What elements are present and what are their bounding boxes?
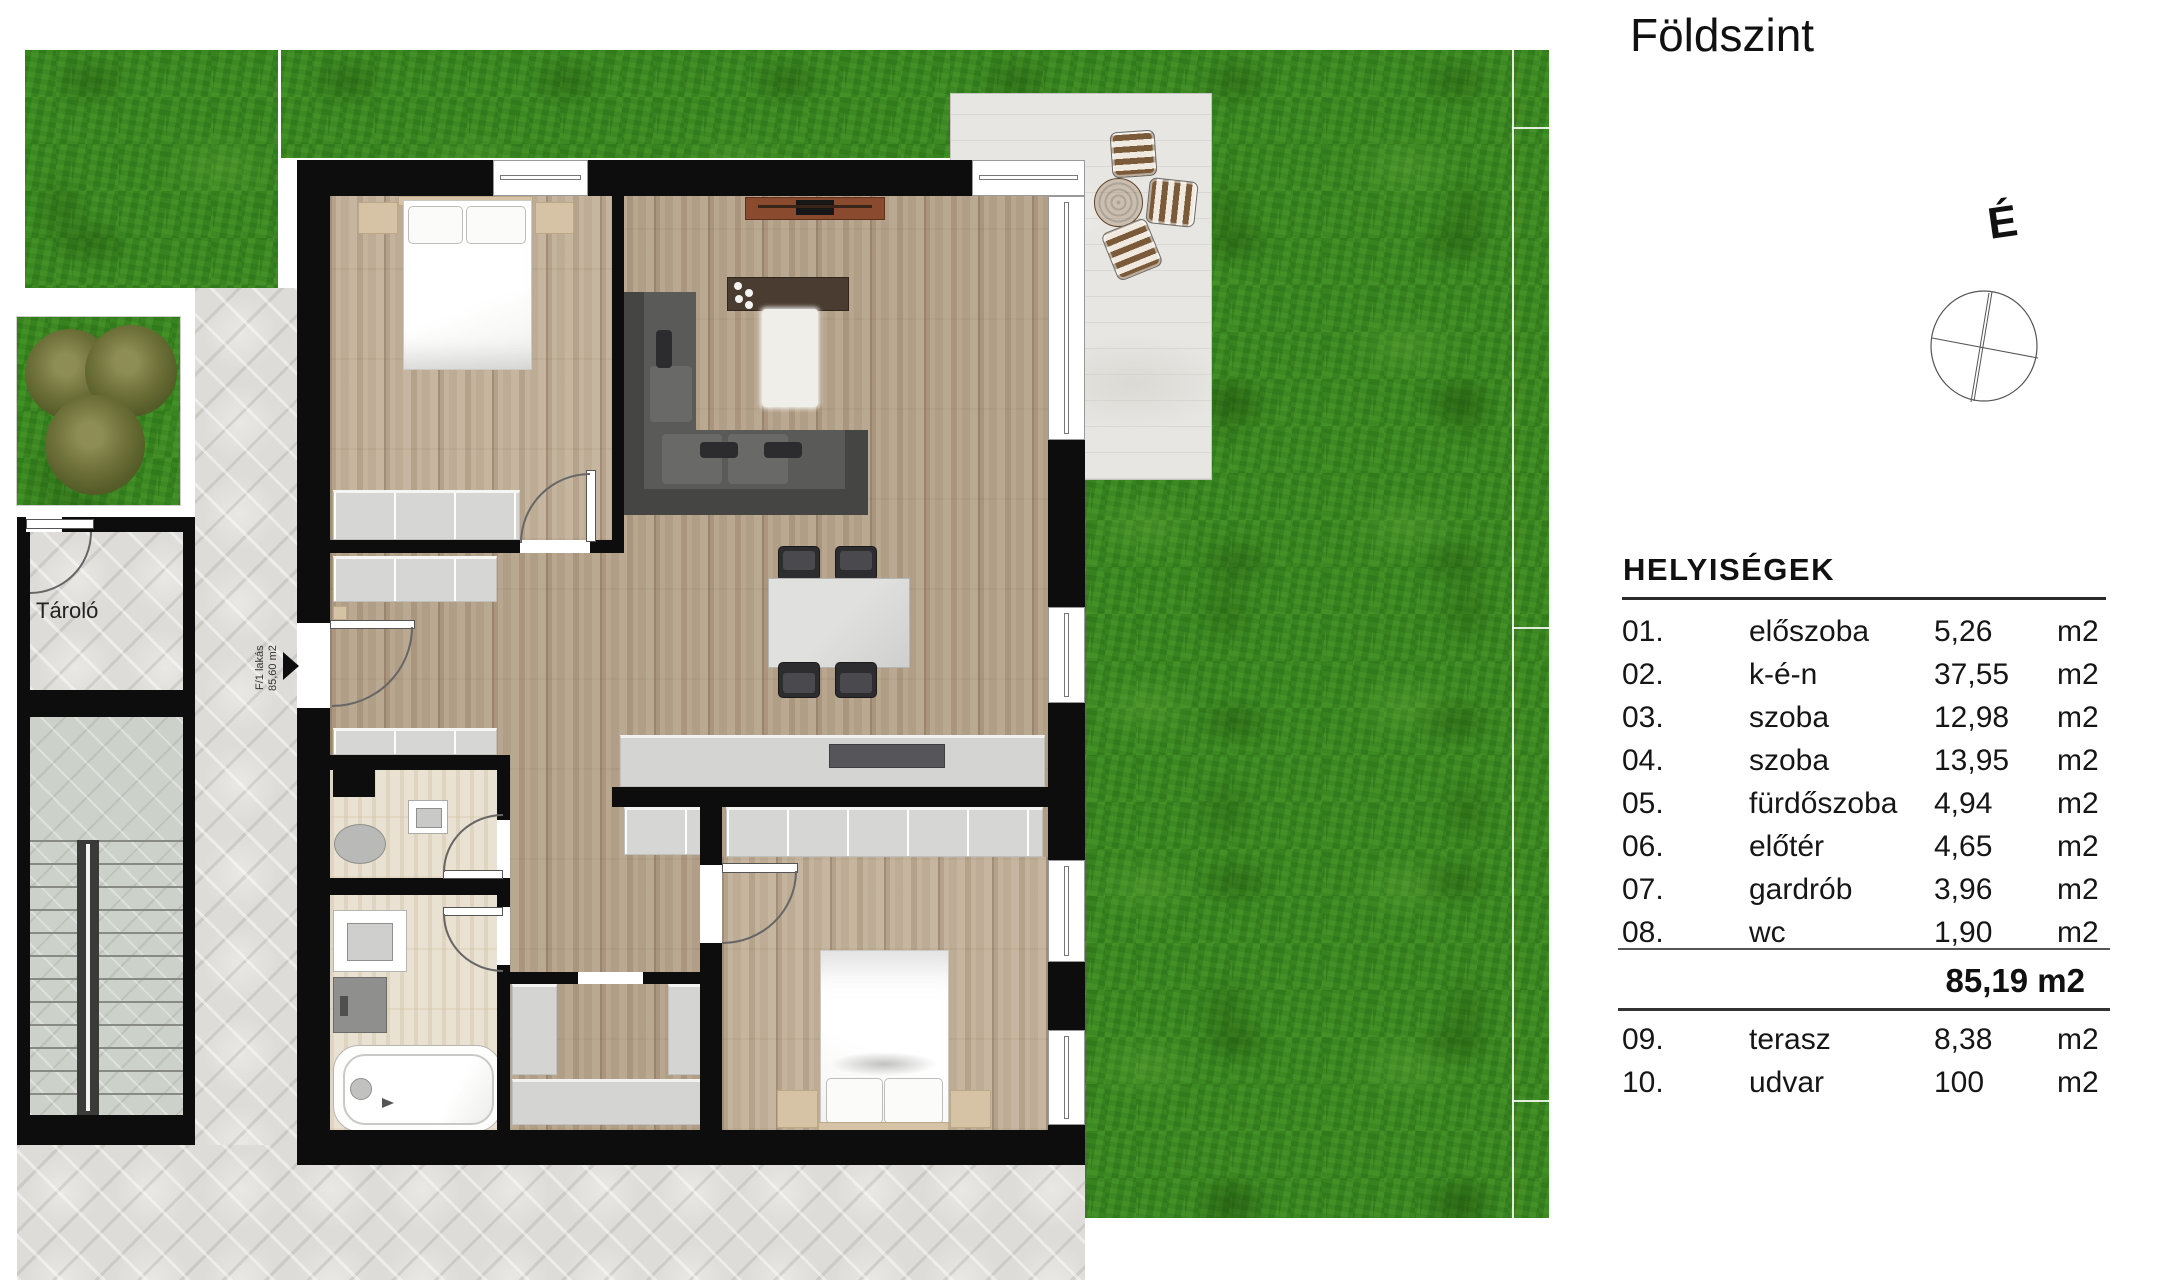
room-unit: m2 [2057, 701, 2132, 735]
window-bedroom03 [493, 160, 588, 196]
grass-area-top [281, 50, 950, 158]
floor-plan-page: Tároló [0, 0, 2178, 1280]
window-bedroom04-a [1048, 860, 1085, 962]
apartment-label: F/1 lakás 85,60 m2 [254, 636, 286, 700]
room-unit: m2 [2057, 658, 2132, 692]
dining-table [768, 578, 910, 668]
wc-sink [408, 800, 448, 834]
table-row: 09.terasz8,38m2 [1622, 1018, 2132, 1061]
living-sideboard [620, 735, 1045, 787]
nightstand [535, 202, 574, 234]
table-row: 03.szoba12,98m2 [1622, 696, 2132, 739]
dining-chair-icon [835, 662, 877, 698]
garden-square [17, 317, 180, 505]
window-bedroom04-b [1048, 1030, 1085, 1125]
room-area: 1,90 [1934, 916, 2057, 950]
room-unit: m2 [2057, 1066, 2132, 1100]
wall-bedroom03-bottom [330, 540, 520, 553]
boundary-tick-2 [1512, 627, 1549, 629]
sofa-pillow [764, 442, 802, 458]
info-panel: Földszint É HELYISÉGEK 01.előszoba5,26m2… [1549, 0, 2178, 1280]
bedroom04-wardrobe [726, 807, 1043, 857]
dining-chair-icon [778, 662, 820, 698]
room-area: 12,98 [1934, 701, 2057, 735]
table-row: 07.gardrób3,96m2 [1622, 868, 2132, 911]
boundary-line-vertical [1512, 50, 1514, 1218]
stairs [30, 840, 183, 1115]
nightstand [950, 1090, 991, 1128]
terrace-door-side [1048, 196, 1085, 440]
pillow [466, 206, 526, 244]
table-row: 06.előtér4,65m2 [1622, 825, 2132, 868]
gardrob-cabinet-left [512, 984, 557, 1075]
grass-area-top-left [25, 50, 278, 288]
sink-dot [735, 295, 743, 303]
room-name: szoba [1749, 701, 1934, 735]
room-num: 06. [1622, 830, 1749, 864]
tv-console [745, 197, 885, 220]
room-area: 4,65 [1934, 830, 2057, 864]
gardrob-door-opening [578, 972, 643, 984]
sink-dot [745, 289, 753, 297]
north-label: É [1985, 196, 2021, 250]
room-unit: m2 [2057, 1023, 2132, 1057]
apartment-area: 85,60 m2 [267, 645, 279, 691]
room-area: 3,96 [1934, 873, 2057, 907]
room-name: gardrób [1749, 873, 1934, 907]
bathtub-icon [333, 1045, 502, 1132]
pillow [884, 1078, 943, 1124]
wall-wc-bath [330, 878, 497, 895]
room-unit: m2 [2057, 744, 2132, 778]
outdoor-table: 09.terasz8,38m2 10.udvar100m2 [1622, 1018, 2132, 1104]
terrace-chair-icon [1145, 177, 1199, 228]
storage-label: Tároló [36, 598, 98, 624]
walkway-bottom [17, 1145, 1085, 1280]
terrace-chair-icon [1100, 217, 1164, 282]
pillow [826, 1078, 883, 1124]
room-num: 05. [1622, 787, 1749, 821]
rug [762, 309, 818, 407]
room-unit: m2 [2057, 873, 2132, 907]
sofa-pillow [700, 442, 738, 458]
room-num: 01. [1622, 615, 1749, 649]
dining-chair-icon [835, 546, 877, 581]
boundary-tick-1 [1512, 127, 1549, 129]
room-num: 02. [1622, 658, 1749, 692]
handrail-line [86, 844, 90, 1111]
room-name: előtér [1749, 830, 1934, 864]
room-num: 04. [1622, 744, 1749, 778]
tree-icon [45, 395, 145, 495]
terrace-chair-icon [1109, 129, 1157, 178]
wc-sink-basin [416, 808, 442, 828]
hall-bench [333, 606, 347, 620]
room-num: 08. [1622, 916, 1749, 950]
sofa-pillow [656, 330, 672, 368]
walkway-vertical [195, 288, 297, 1165]
room-name: szoba [1749, 744, 1934, 778]
table-row: 10.udvar100m2 [1622, 1061, 2132, 1104]
sink-dot [745, 301, 753, 309]
room-table: 01.előszoba5,26m2 02.k-é-n37,55m2 03.szo… [1622, 610, 2132, 954]
table-row: 04.szoba13,95m2 [1622, 739, 2132, 782]
room-name: fürdőszoba [1749, 787, 1934, 821]
room-name: udvar [1749, 1066, 1934, 1100]
table-title: HELYISÉGEK [1623, 552, 1835, 588]
room-num: 10. [1622, 1066, 1749, 1100]
room-unit: m2 [2057, 916, 2132, 950]
washer-door [340, 996, 348, 1016]
wall-bedroom04-left [700, 807, 722, 1130]
table-rule-bottom [1618, 1008, 2110, 1011]
table-row: 02.k-é-n37,55m2 [1622, 653, 2132, 696]
bathroom-vanity [333, 910, 407, 972]
kitchen-island [727, 277, 849, 311]
apartment-id: F/1 lakás [254, 646, 266, 691]
room-unit: m2 [2057, 830, 2132, 864]
stair-handrail [77, 840, 99, 1115]
wall-bedroom03-living [612, 196, 624, 553]
table-rule-top [1622, 597, 2106, 600]
dining-chair-icon [778, 546, 820, 581]
terrace-door-top [972, 160, 1085, 196]
storage-door-leaf [26, 519, 94, 529]
room-area: 13,95 [1934, 744, 2057, 778]
nightstand [358, 202, 398, 234]
wall-exterior-top [297, 160, 972, 196]
page-title: Földszint [1630, 8, 1814, 62]
washing-machine [333, 977, 387, 1033]
sofa-backrest [618, 489, 868, 515]
nightstand [777, 1090, 818, 1128]
hall-cabinet [333, 556, 497, 602]
pillow [408, 206, 463, 244]
room-name: előszoba [1749, 615, 1934, 649]
wall-exterior-bottom [297, 1130, 1085, 1165]
room-num: 09. [1622, 1023, 1749, 1057]
total-area: 85,19 m2 [1620, 962, 2085, 1000]
toilet-icon [334, 824, 386, 864]
table-row: 01.előszoba5,26m2 [1622, 610, 2132, 653]
gardrob-cabinet-bottom [512, 1079, 713, 1125]
room-num: 07. [1622, 873, 1749, 907]
room-area: 5,26 [1934, 615, 2057, 649]
sink-dot [734, 282, 742, 290]
sofa-armrest [845, 430, 868, 515]
tub-faucet [350, 1078, 372, 1100]
window-living [1048, 607, 1085, 703]
entry-door-opening [297, 623, 330, 708]
bedroom04-door-opening [700, 865, 722, 943]
north-arrow-icon [1929, 289, 2041, 405]
soundbar [758, 205, 872, 208]
room-name: terasz [1749, 1023, 1934, 1057]
room-area: 100 [1934, 1066, 2057, 1100]
hall-lower-cabinet [333, 728, 497, 755]
room-area: 8,38 [1934, 1023, 2057, 1057]
room-name: k-é-n [1749, 658, 1934, 692]
sideboard-niche [829, 744, 945, 768]
duvet-fold [830, 1052, 938, 1076]
room-area: 4,94 [1934, 787, 2057, 821]
bedroom03-wardrobe [333, 490, 520, 540]
room-num: 03. [1622, 701, 1749, 735]
room-name: wc [1749, 916, 1934, 950]
room-unit: m2 [2057, 787, 2132, 821]
room-area: 37,55 [1934, 658, 2057, 692]
wall-wc-top [330, 755, 510, 770]
vanity-basin [347, 923, 393, 961]
room-unit: m2 [2057, 615, 2132, 649]
wall-living-bottom [612, 787, 1048, 807]
table-row: 05.fürdőszoba4,94m2 [1622, 782, 2132, 825]
sofa-cushion [650, 366, 692, 422]
site-plan: Tároló [0, 0, 1549, 1280]
boundary-tick-3 [1512, 1100, 1549, 1102]
table-rule-mid [1618, 948, 2110, 950]
